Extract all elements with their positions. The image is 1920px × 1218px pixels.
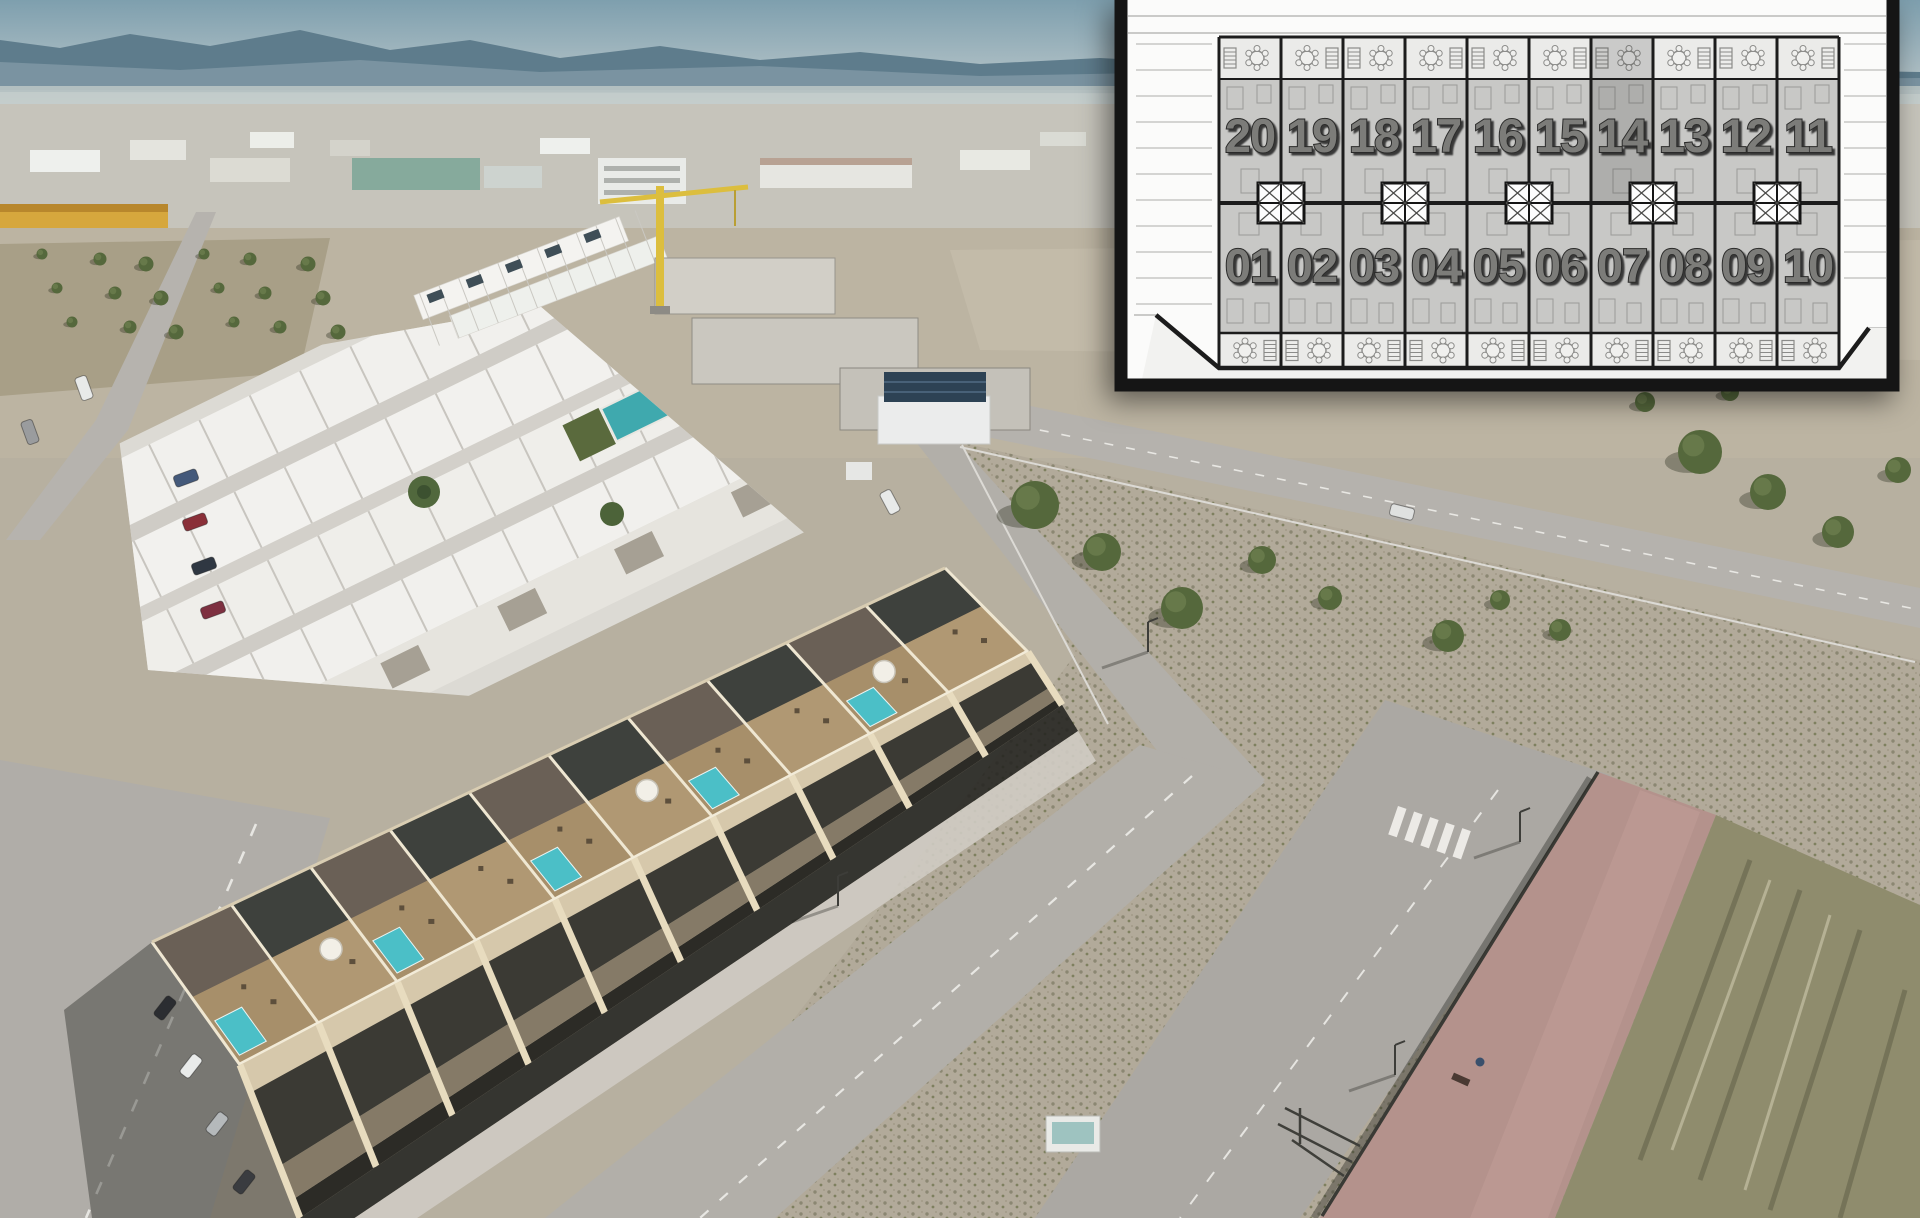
- terrace-furniture: [270, 999, 276, 1004]
- tree-highlight: [1492, 592, 1502, 602]
- tree-highlight: [1754, 478, 1772, 496]
- umbrella-icon: [320, 938, 342, 960]
- unit-number-label: 02: [1287, 239, 1337, 292]
- tree-highlight: [1551, 621, 1562, 632]
- unit-divider: [83, 566, 110, 622]
- unit-number-label: 04: [1411, 239, 1462, 292]
- terrace-furniture: [399, 905, 404, 910]
- tree-highlight: [1087, 537, 1106, 556]
- stairs-icon: [1224, 48, 1236, 68]
- stairwell-box-icon: [1258, 183, 1304, 223]
- umbrella-icon: [636, 779, 658, 801]
- stairs-icon: [1388, 341, 1400, 361]
- unit-number-label: 20: [1225, 109, 1275, 162]
- unit-divider: [33, 590, 60, 646]
- car: [879, 489, 901, 516]
- unit-divider: [117, 634, 143, 688]
- unit-divider: [99, 469, 127, 527]
- stairs-icon: [1822, 48, 1834, 68]
- stairs-icon: [1760, 341, 1772, 361]
- unit-number-label: 01: [1225, 239, 1275, 292]
- stairs-icon: [1472, 48, 1484, 68]
- tree-highlight: [1825, 519, 1841, 535]
- stairs-icon: [1264, 341, 1276, 361]
- bus-shelter: [1046, 1116, 1100, 1152]
- tree-highlight: [95, 254, 102, 261]
- tree-highlight: [155, 292, 163, 300]
- tree-highlight: [1320, 588, 1332, 600]
- terrace-furniture: [902, 678, 908, 683]
- unit-number-label: 14: [1597, 109, 1648, 162]
- terrace-furniture: [795, 708, 800, 713]
- tree-highlight: [53, 284, 59, 290]
- unit-number-label: 19: [1287, 109, 1337, 162]
- unit-divider: [200, 678, 225, 730]
- tree-highlight: [317, 292, 325, 300]
- stairwell-box-icon: [1754, 183, 1800, 223]
- unit-divider: [100, 727, 125, 779]
- pedestrian: [1476, 1058, 1485, 1067]
- floor-plan: 2001190218031704160515061407130812091110: [1219, 37, 1839, 368]
- terrace-furniture: [715, 748, 720, 753]
- unit-number-label: 05: [1473, 239, 1523, 292]
- stairs-icon: [1636, 341, 1648, 361]
- tree-highlight: [1016, 486, 1040, 510]
- terrace-furniture: [349, 959, 355, 964]
- unit-number-label: 08: [1659, 239, 1709, 292]
- tree-highlight: [1435, 623, 1451, 639]
- terrace-furniture: [428, 919, 434, 924]
- stairs-icon: [1574, 48, 1586, 68]
- unit-number-label: 06: [1535, 239, 1585, 292]
- tree-highlight: [1165, 591, 1186, 612]
- unit-number-label: 18: [1349, 109, 1399, 162]
- unit-number-label: 13: [1659, 109, 1709, 162]
- stairs-icon: [1348, 48, 1360, 68]
- sun-shade: [263, 702, 313, 746]
- stairwell-box-icon: [1630, 183, 1676, 223]
- tree-highlight: [332, 326, 340, 334]
- unit-number-label: 09: [1721, 239, 1771, 292]
- stairs-icon: [1698, 48, 1710, 68]
- stairs-icon: [1286, 341, 1298, 361]
- stairs-icon: [1658, 341, 1670, 361]
- terrace-furniture: [507, 879, 513, 884]
- terrace-furniture: [744, 758, 750, 763]
- terrace-furniture: [823, 718, 829, 723]
- stairs-icon: [1410, 341, 1422, 361]
- terrace-furniture: [665, 799, 671, 804]
- umbrella-icon: [873, 660, 895, 682]
- terrace-furniture: [586, 839, 592, 844]
- unit-divider: [66, 658, 92, 712]
- unit-number-label: 15: [1535, 109, 1585, 162]
- tree-highlight: [230, 318, 236, 324]
- unit-number-label: 03: [1349, 239, 1399, 292]
- site-plan-inset: 2001190218031704160515061407130812091110: [1112, 0, 1902, 394]
- tree-highlight: [170, 326, 178, 334]
- stairs-icon: [1326, 48, 1338, 68]
- stairs-icon: [1720, 48, 1732, 68]
- tree-highlight: [260, 288, 267, 295]
- terrace-furniture: [953, 629, 958, 634]
- terrace-furniture: [981, 638, 987, 643]
- tree-highlight: [1888, 460, 1901, 473]
- unit-number-label: 17: [1411, 109, 1461, 162]
- tree-highlight: [1251, 549, 1265, 563]
- stairs-icon: [1512, 341, 1524, 361]
- tree-highlight: [1682, 434, 1704, 456]
- tree-highlight: [110, 288, 117, 295]
- tree-highlight: [38, 250, 44, 256]
- stairs-icon: [1450, 48, 1462, 68]
- unit-number-label: 12: [1721, 109, 1771, 162]
- screenshot-root: 2001190218031704160515061407130812091110: [0, 0, 1920, 1218]
- tree-highlight: [1637, 394, 1647, 404]
- tree-highlight: [302, 258, 310, 266]
- unit-divider: [150, 702, 175, 754]
- tree-highlight: [215, 284, 221, 290]
- tree-highlight: [275, 322, 282, 329]
- stairs-icon: [1534, 341, 1546, 361]
- tree-highlight: [125, 322, 132, 329]
- stairs-icon: [1782, 341, 1794, 361]
- warehouse-teal-roof: [352, 158, 480, 190]
- terrace-furniture: [478, 866, 483, 871]
- stairwell-box-icon: [1382, 183, 1428, 223]
- stairwell-box-icon: [1506, 183, 1552, 223]
- tree-highlight: [200, 250, 206, 256]
- unit-number-label: 16: [1473, 109, 1523, 162]
- unit-number-label: 11: [1784, 109, 1832, 162]
- unit-number-label: 10: [1783, 239, 1833, 292]
- terrace-furniture: [557, 827, 562, 832]
- terrace-furniture: [241, 984, 246, 989]
- tree-highlight: [140, 258, 148, 266]
- tree-highlight: [245, 254, 252, 261]
- tree-highlight: [68, 318, 74, 324]
- unit-number-label: 07: [1597, 239, 1647, 292]
